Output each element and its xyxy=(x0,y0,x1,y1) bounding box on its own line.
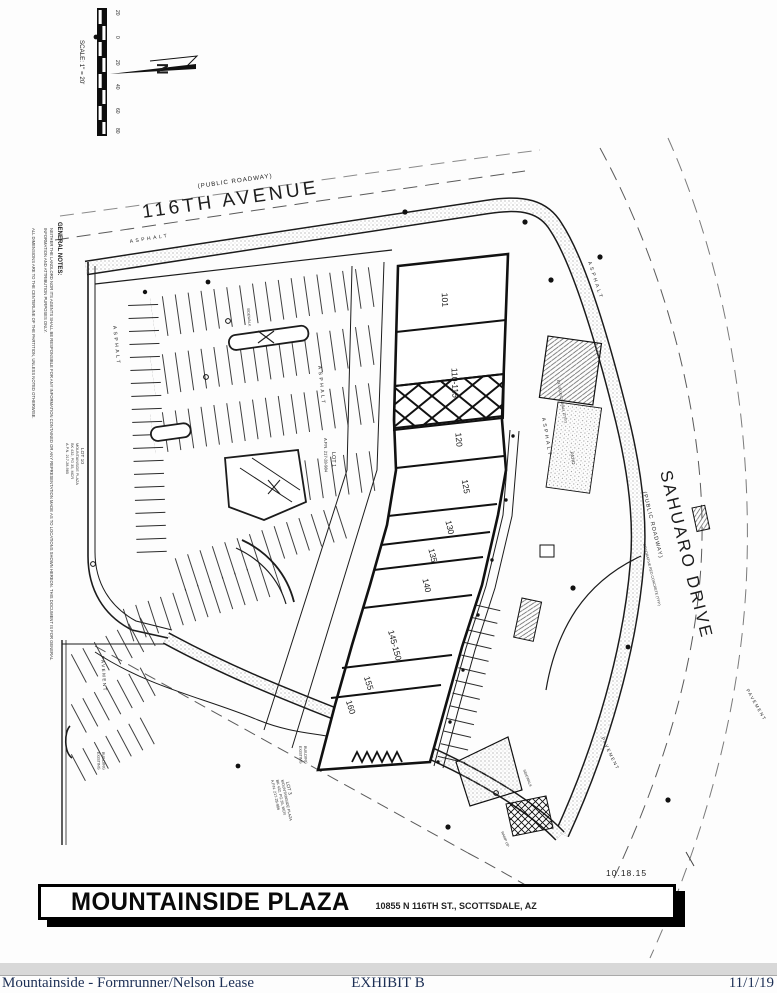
general-note-line: INFORMATION AND ATTRIBUTION PURPOSES ONL… xyxy=(43,228,48,333)
lot1-name: LOT 1 xyxy=(330,452,336,467)
lot10-line: MOUNTAINSIDE PLAZA xyxy=(75,443,79,485)
sidewalk-label: SIDEWALK xyxy=(522,769,533,788)
title-block: MOUNTAINSIDE PLAZA 10855 N 116TH ST., SC… xyxy=(38,884,676,920)
existing-building-label: EXISTING xyxy=(96,752,101,770)
scale-tick: 20 xyxy=(114,10,120,16)
unit-label: 101 xyxy=(440,293,450,308)
monument-sign xyxy=(692,505,710,531)
existing-building-label: BUILDING xyxy=(303,746,308,764)
general-note-line: NEITHER THE LANDLORD NOR ITS AGENTS SHAL… xyxy=(49,228,54,661)
asphalt-label: ASPHALT xyxy=(540,417,553,457)
asphalt-label: ASPHALT xyxy=(129,233,169,245)
north-letter: N xyxy=(153,63,170,75)
site-plan-page: SCALE: 1" = 20' 20 0 20 40 60 80 N GENER… xyxy=(0,0,777,993)
revision-tick xyxy=(686,852,694,866)
general-notes: GENERAL NOTES: NEITHER THE LANDLORD NOR … xyxy=(31,222,62,661)
scale-bar: SCALE: 1" = 20' 20 0 20 40 60 80 xyxy=(78,8,120,136)
scale-tick: 40 xyxy=(114,84,120,90)
footer-date: 11/1/19 xyxy=(425,975,777,992)
scale-tick: 80 xyxy=(114,128,120,134)
date-stamp: 10.18.15 xyxy=(606,868,647,878)
lot1-apn: A.P.N. 217-28-984 xyxy=(323,438,329,473)
document-footer: Mountainside - Formrunner/Nelson Lease E… xyxy=(0,975,777,993)
project-address: 10855 N 116TH ST., SCOTTSDALE, AZ xyxy=(375,901,536,911)
scale-label: SCALE: 1" = 20' xyxy=(78,40,85,84)
road-name-sahuaro-drive: SAHUARO DRIVE xyxy=(656,468,716,641)
existing-building-label: BUILDING xyxy=(101,752,106,770)
patio-area xyxy=(546,402,602,493)
unit-label: 120 xyxy=(453,432,464,447)
north-arrow-icon: N xyxy=(110,56,197,75)
site-plan-drawing: SCALE: 1" = 20' 20 0 20 40 60 80 N GENER… xyxy=(0,0,777,960)
scale-tick: 0 xyxy=(114,36,120,39)
pavement-label: PAVEMENT xyxy=(600,736,620,771)
existing-building-label: EXISTING xyxy=(298,746,303,764)
lot10-line: BK 432, PG 35, MCR xyxy=(70,443,74,479)
general-note-line: ALL DIMENSIONS ARE TO THE CENTERLINE OF … xyxy=(31,228,36,419)
scale-tick: 60 xyxy=(114,108,120,114)
general-notes-heading: GENERAL NOTES: xyxy=(56,222,62,276)
footer-lease-name: Mountainside - Formrunner/Nelson Lease xyxy=(0,975,351,992)
unit-label: 110-115 xyxy=(449,368,460,399)
ramp-label: RAMP UP xyxy=(500,831,510,848)
lot10-line: A.P.N. 217-28-985 xyxy=(65,443,69,474)
project-name: MOUNTAINSIDE PLAZA xyxy=(71,888,350,917)
pavement-label: PAVEMENT xyxy=(745,688,767,722)
scale-tick: 20 xyxy=(114,60,120,66)
asphalt-label: ASPHALT xyxy=(111,326,121,366)
footer-exhibit-label: EXHIBIT B xyxy=(351,975,424,992)
